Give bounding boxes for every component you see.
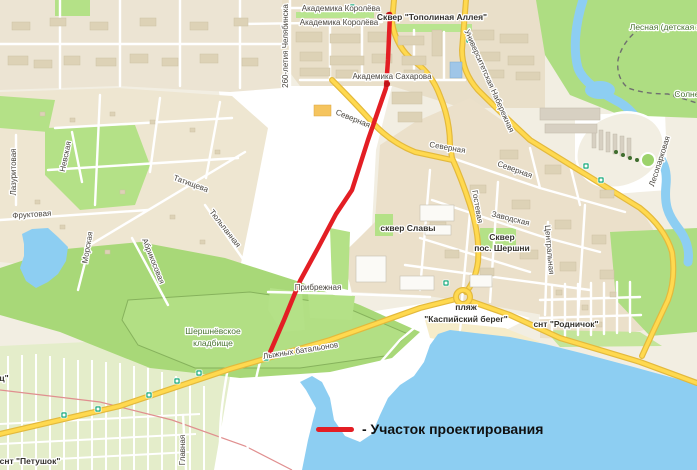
map-legend: - Участок проектирования: [316, 421, 543, 437]
map-label: Лесная (детская ж: [630, 22, 697, 32]
map-label: Шершнёвское: [185, 326, 241, 336]
map-label: кладбище: [193, 338, 233, 348]
bus-stop-icon[interactable]: [61, 412, 67, 418]
topolinaya-alley-green: [388, 24, 472, 32]
legend-line-swatch: [316, 427, 354, 432]
map-label: пляж: [455, 302, 477, 312]
poi-building: [314, 105, 331, 116]
map-label: Академика Королёва: [300, 18, 379, 27]
legend-label: - Участок проектирования: [362, 421, 543, 437]
bus-stop-icon[interactable]: [443, 280, 449, 286]
map-label: Академика Королёва: [302, 4, 381, 13]
bus-stop-icon[interactable]: [196, 370, 202, 376]
map-label: снт "Родничок": [533, 319, 598, 329]
map-label: Лазуритовая: [9, 149, 18, 196]
project-endpoint-dot: [384, 81, 390, 87]
map-label: Сквер "Тополиная Аллея": [377, 12, 487, 22]
map-label: "Каспийский берег": [424, 314, 508, 324]
map-label: Прибрежная: [295, 283, 342, 292]
map-label: Сквер: [489, 232, 514, 242]
bus-stop-icon[interactable]: [146, 392, 152, 398]
bus-stop-icon[interactable]: [583, 163, 589, 169]
bus-stop-icon[interactable]: [174, 378, 180, 384]
map-label: снт "Петушок": [0, 456, 60, 466]
map-label: 260-летия Челябинска: [281, 4, 290, 88]
map-label: сквер Славы: [380, 223, 435, 233]
map-label: Академика Сахарова: [352, 72, 432, 81]
map-label: Главная: [178, 435, 187, 465]
map-canvas[interactable]: Академика КоролёваАкадемика КоролёваСкве…: [0, 0, 697, 470]
bus-stop-icon[interactable]: [598, 177, 604, 183]
blue-building: [450, 62, 462, 78]
bus-stop-icon[interactable]: [95, 406, 101, 412]
map-label: Солнеч: [674, 89, 697, 99]
map-label: пос. Шершни: [474, 243, 530, 253]
map-svg: Академика КоролёваАкадемика КоролёваСкве…: [0, 0, 697, 470]
map-label: ц": [0, 373, 9, 383]
